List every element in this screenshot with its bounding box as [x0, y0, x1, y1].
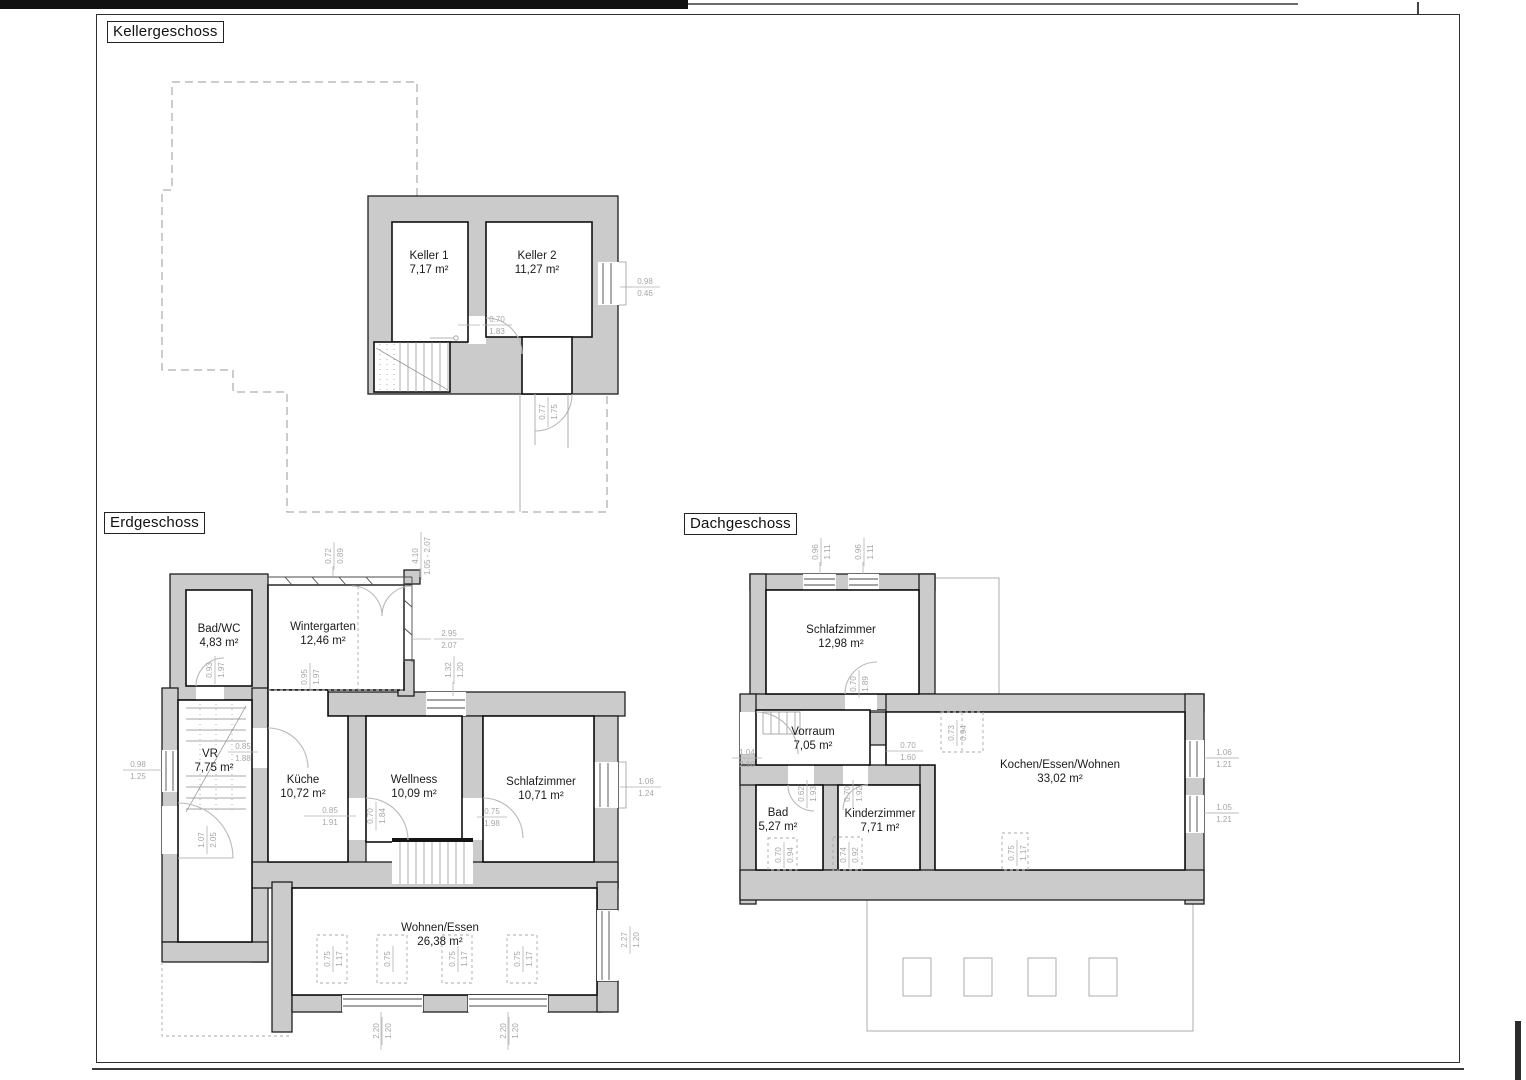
dim-height-label: 1.21 — [1216, 815, 1232, 824]
dg-roof-outline-top — [935, 578, 999, 696]
room-label-schlafzimmer-dg-name: Schlafzimmer — [806, 624, 876, 636]
eg-badwc-door-opening — [196, 686, 224, 701]
eg-schlaf-window-opening — [594, 762, 618, 808]
dg-roof-window-4 — [1089, 958, 1117, 996]
room-label-kew-name: Kochen/Essen/Wohnen — [1000, 759, 1120, 771]
dim-width-label: 1.07 — [197, 832, 206, 848]
dg-schlaf-right-wall — [919, 574, 935, 710]
room-label-badwc-name: Bad/WC — [198, 623, 241, 635]
eg-we-window2-opening — [468, 995, 548, 1012]
room-label-schlafzimmer-dg-area: 12,98 m² — [818, 638, 864, 650]
dim-width-label: 0.75 — [484, 807, 500, 816]
kg-window-opening — [598, 262, 619, 305]
dim-width-label: 0.70 — [774, 847, 783, 863]
dim-width-label: 0.96 — [854, 544, 863, 560]
dg-roofwin1-opening — [803, 574, 836, 590]
dg-roof-window-1 — [903, 958, 931, 996]
dim-height-label: 1.97 — [217, 662, 226, 678]
dg-schlaf-top-wall — [750, 574, 935, 590]
dim-height-label: 0.89 — [336, 548, 345, 564]
eg-vr-kueche-door-opening — [252, 728, 268, 768]
dim-height-label: 0.94 — [786, 847, 795, 863]
eg-we-bottom-wall-1 — [292, 995, 342, 1012]
room-label-bad-name: Bad — [768, 807, 788, 819]
dim-eg-top-left: 0.72 0.89 — [324, 542, 345, 570]
scanned-floorplan-sheet: Kellergeschoss Erdgeschoss Dachgeschoss — [0, 0, 1526, 1080]
room-schlafzimmer-eg — [483, 716, 594, 862]
dg-kind-door-opening — [843, 765, 868, 785]
dim-height-label: 1.89 — [861, 676, 870, 692]
dim-height-label: 1.17 — [525, 951, 534, 967]
eg-schlaf-window-sill — [619, 762, 626, 808]
kg-door-opening-inner — [468, 316, 486, 344]
room-label-kew-area: 33,02 m² — [1037, 773, 1083, 785]
plan-erdgeschoss: Bad/WC 4,83 m² Wintergarten 12,46 m² VR … — [123, 532, 661, 1050]
dim-kg-exit-door: 0.77 1.75 — [538, 397, 559, 427]
dim-width-label: 0.73 — [947, 725, 956, 741]
dim-width-label: 1.05 — [1216, 803, 1232, 812]
dim-height-label: 1.75 — [550, 404, 559, 420]
eg-mid-window-opening — [426, 692, 466, 716]
kg-exit-door-opening — [524, 378, 570, 393]
dg-roof-window-2 — [964, 958, 992, 996]
dim-eg-we-bottom1: 2.20 1.20 — [372, 1017, 393, 1045]
dg-win2-opening — [1185, 795, 1204, 833]
dim-height-label: 1.21 — [1216, 760, 1232, 769]
dim-width-label: 0.85 — [322, 806, 338, 815]
dim-width-label: 0.95 — [300, 669, 309, 685]
dim-width-label: 0.93 — [205, 662, 214, 678]
dim-width-label: 2.20 — [372, 1023, 381, 1039]
dg-kew-top-wall — [886, 694, 1204, 712]
dim-eg-win-right: 1.06 1.24 — [631, 777, 661, 798]
plan-kellergeschoss: Keller 1 7,17 m² Keller 2 11,27 m² 0.70 … — [162, 82, 660, 512]
dim-height-label: 1.20 — [384, 1023, 393, 1039]
dg-schlaf-door-opening — [845, 694, 877, 710]
dim-width-label: 1.06 — [638, 777, 654, 786]
dim-height-label: 1.05 - 2.07 — [423, 536, 432, 575]
eg-we-bottom-wall-3 — [548, 995, 602, 1012]
dim-width-label: 0.98 — [130, 760, 146, 769]
dim-width-label: 1.04 — [739, 748, 755, 757]
dim-height-label: 1.98 — [484, 819, 500, 828]
floorplan-drawing: Keller 1 7,17 m² Keller 2 11,27 m² 0.70 … — [0, 0, 1526, 1080]
room-label-kinderzimmer-name: Kinderzimmer — [845, 808, 916, 820]
dim-width-label: 0.75 — [383, 951, 392, 967]
eg-vr-bottom-wall — [162, 942, 268, 962]
room-label-vorraum-name: Vorraum — [791, 726, 834, 738]
dim-width-label: 0.96 — [811, 544, 820, 560]
dim-width-label: 0.98 — [637, 277, 653, 286]
dim-height-label: 2.10 — [739, 760, 755, 769]
dg-schlaf-left-wall — [750, 574, 766, 700]
dg-vorraum-kew-wall — [870, 712, 886, 745]
dim-height-label: 1.11 — [866, 544, 875, 560]
dg-bad-door-opening — [788, 765, 814, 785]
dim-eg-win-left: 0.98 1.25 — [123, 760, 153, 781]
dim-height-label: 1.17 — [460, 951, 469, 967]
room-label-keller2-area: 11,27 m² — [515, 264, 560, 276]
dim-width-label: 4.10 — [411, 548, 420, 564]
room-label-bad-area: 5,27 m² — [759, 821, 798, 833]
eg-we-rightwindow-opening — [597, 910, 618, 981]
dim-width-label: 1.32 — [444, 662, 453, 678]
dim-width-label: 0.70 — [849, 676, 858, 692]
dim-height-label: 0.46 — [637, 289, 653, 298]
dim-width-label: 0.74 — [839, 847, 848, 863]
dim-height-label: 1.60 — [900, 753, 916, 762]
dim-width-label: 0.75 — [513, 951, 522, 967]
dim-height-label: 1.11 — [823, 544, 832, 560]
dim-width-label: 0.85 — [235, 742, 251, 751]
dim-width-label: 0.70 — [366, 808, 375, 824]
dim-height-label: 1.25 — [130, 772, 146, 781]
dim-width-label: 0.62 — [797, 786, 806, 802]
room-keller-1 — [392, 222, 468, 342]
room-label-schlafzimmer-eg-area: 10,71 m² — [518, 790, 564, 802]
room-label-kueche-area: 10,72 m² — [280, 788, 326, 800]
dim-width-label: 2.95 — [441, 629, 457, 638]
dim-height-label: 1.20 — [456, 662, 465, 678]
eg-vr-window-opening — [162, 750, 178, 792]
dim-height-label: 1.92 — [855, 786, 864, 802]
dim-height-label: 1.17 — [335, 951, 344, 967]
dim-height-label: 0.92 — [851, 847, 860, 863]
room-label-wellness-area: 10,09 m² — [391, 788, 437, 800]
dim-width-label: 0.70 — [843, 786, 852, 802]
room-label-keller2-name: Keller 2 — [518, 250, 557, 262]
dg-vorraum-bottom-wall — [740, 765, 936, 785]
room-label-wintergarten-name: Wintergarten — [290, 621, 356, 633]
dim-dg-win-right1: 1.06 1.21 — [1209, 748, 1239, 769]
room-label-wintergarten-area: 12,46 m² — [300, 635, 346, 647]
eg-stairs-down — [392, 838, 473, 884]
room-label-vr-area: 7,75 m² — [195, 762, 234, 774]
dg-roofwin2-opening — [848, 574, 879, 590]
plan-dachgeschoss: Schlafzimmer 12,98 m² Vorraum 7,05 m² Ba… — [732, 538, 1239, 1031]
room-label-schlafzimmer-eg-name: Schlafzimmer — [506, 776, 576, 788]
dg-bottom-wall — [740, 870, 1204, 900]
dim-width-label: 0.75 — [323, 951, 332, 967]
room-label-wellness-name: Wellness — [391, 774, 438, 786]
room-label-kueche-name: Küche — [287, 774, 320, 786]
dg-roof-window-3 — [1028, 958, 1056, 996]
dim-dg-roofwin2: 0.96 1.11 — [854, 538, 875, 566]
dim-width-label: 0.70 — [489, 315, 505, 324]
dim-height-label: 1.17 — [1019, 845, 1028, 861]
dim-width-label: 0.70 — [900, 741, 916, 750]
room-label-wohnen-essen-name: Wohnen/Essen — [401, 922, 479, 934]
dim-height-label: 1.20 — [632, 932, 641, 948]
dg-kind-right-wall — [920, 765, 935, 875]
dim-eg-win-mid: 1.32 1.20 — [444, 656, 465, 684]
dim-dg-win-right2: 1.05 1.21 — [1209, 803, 1239, 824]
dim-height-label: 1.97 — [312, 669, 321, 685]
dim-height-label: 2.07 — [441, 641, 457, 650]
eg-we-right-wall-top — [597, 882, 618, 910]
dim-eg-we-bottom2: 2.20 1.20 — [499, 1017, 520, 1045]
dim-kg-window: 0.98 0.46 — [630, 277, 660, 298]
dim-height-label: 0.94 — [959, 725, 968, 741]
dim-eg-wg-right: 2.95 2.07 — [434, 629, 464, 650]
dim-height-label: 2.05 — [209, 832, 218, 848]
dim-height-label: 1.20 — [511, 1023, 520, 1039]
dim-width-label: 2.20 — [499, 1023, 508, 1039]
dim-width-label: 2.27 — [620, 932, 629, 948]
room-label-vr-name: VR — [202, 748, 218, 760]
room-vr — [178, 700, 252, 942]
eg-we-right-wall-bottom — [597, 981, 618, 1012]
room-label-badwc-area: 4,83 m² — [200, 637, 239, 649]
kg-window-sill — [619, 262, 626, 305]
dim-width-label: 0.77 — [538, 404, 547, 420]
eg-we-left-wall — [272, 882, 292, 1032]
dim-height-label: 1.91 — [322, 818, 338, 827]
eg-schlaf-door-opening — [462, 798, 483, 840]
dg-win1-opening — [1185, 740, 1204, 778]
room-label-wohnen-essen-area: 26,38 m² — [417, 936, 463, 948]
dim-width-label: 0.75 — [1007, 845, 1016, 861]
dim-dg-roofwin1: 0.96 1.11 — [811, 538, 832, 566]
eg-wellness-door-opening — [348, 798, 366, 840]
dim-height-label: 1.83 — [489, 327, 505, 336]
room-label-kinderzimmer-area: 7,71 m² — [861, 822, 900, 834]
dim-height-label: 1.88 — [235, 754, 251, 763]
room-label-keller1-area: 7,17 m² — [410, 264, 449, 276]
eg-midrow-top-wall — [328, 692, 625, 716]
eg-we-bottom-wall-2 — [423, 995, 468, 1012]
dim-width-label: 0.72 — [324, 548, 333, 564]
dim-height-label: 1.24 — [638, 789, 654, 798]
room-label-keller1-name: Keller 1 — [410, 250, 449, 262]
dim-height-label: 1.84 — [378, 808, 387, 824]
eg-entry-door-opening — [162, 806, 178, 854]
dim-eg-we-right: 2.27 1.20 — [620, 926, 641, 954]
dg-roof-outline-bottom — [867, 888, 1193, 1031]
room-label-vorraum-area: 7,05 m² — [794, 740, 833, 752]
dim-width-label: 0.75 — [448, 951, 457, 967]
dg-bad-kind-wall — [823, 785, 838, 870]
eg-we-window1-opening — [342, 995, 423, 1012]
dim-height-label: 1.93 — [809, 786, 818, 802]
dim-width-label: 1.06 — [1216, 748, 1232, 757]
